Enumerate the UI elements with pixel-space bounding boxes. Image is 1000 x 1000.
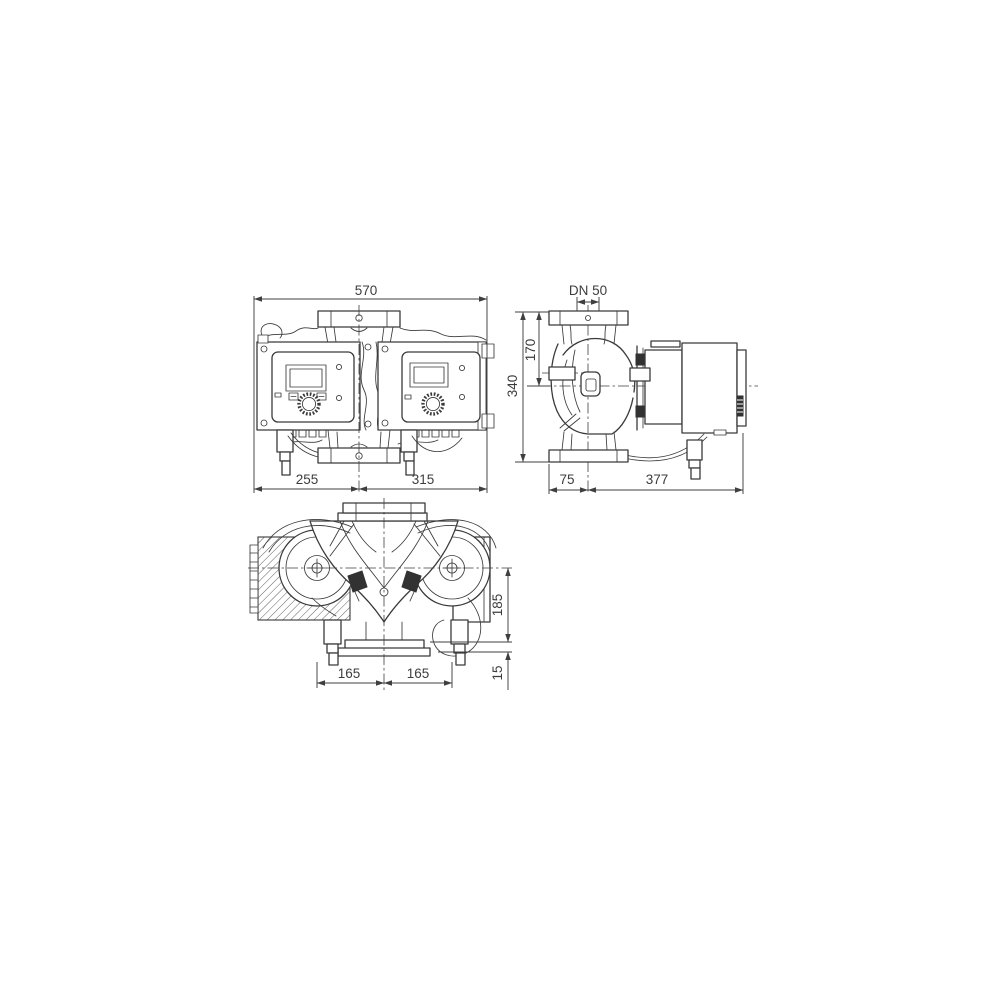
ribbed-connector: [737, 396, 743, 416]
front-view: [257, 305, 494, 493]
dim-side-nominal-diameter: DN 50: [569, 283, 607, 298]
terminal-nubs: [289, 430, 459, 437]
left-control-module: [272, 352, 354, 422]
plate-tab: [482, 344, 494, 358]
dim-top-left-spacing: 165: [338, 666, 361, 681]
shaft-cover: [581, 372, 600, 396]
dim-front-right-offset: 315: [412, 472, 435, 487]
dim-top-right-spacing: 165: [407, 666, 430, 681]
right-control-module: [402, 352, 480, 422]
top-view-upper-flange: [338, 503, 427, 521]
side-connector: [258, 335, 268, 343]
drawing-canvas: 570 255 315 DN 50 170 340 75 377 185 15: [0, 0, 1000, 1000]
dim-top-axis-offset: 185: [490, 594, 505, 617]
casting-curve: [400, 328, 486, 340]
lantern-bolt: [365, 421, 371, 427]
side-cable-gland: [687, 440, 702, 479]
lantern-bolt: [365, 344, 371, 350]
side-bottom-flange: [549, 432, 628, 462]
cable-gland-right: [401, 430, 417, 475]
dim-side-total-height: 340: [505, 375, 520, 398]
motor-window: [630, 368, 650, 381]
motor-clamp: [636, 346, 645, 430]
dim-top-foot-offset: 15: [490, 665, 505, 680]
electronics-module: [682, 343, 737, 433]
technical-drawing: 570 255 315 DN 50 170 340 75 377 185 15: [0, 0, 1000, 1000]
pressure-port: [549, 367, 575, 380]
vent-plug-stem: [410, 592, 414, 601]
vent-plug-stem: [355, 592, 359, 601]
dim-side-rear-depth: 377: [646, 472, 669, 487]
rib-strip: [250, 545, 258, 613]
dim-front-total-width: 570: [355, 283, 378, 298]
cable-gland-left: [277, 430, 293, 475]
plate-tab: [482, 414, 494, 428]
top-cable-gland-left: [324, 620, 341, 665]
motor-and-module: [630, 341, 746, 435]
housing-gap-curve: [361, 342, 366, 430]
dim-front-left-offset: 255: [296, 472, 319, 487]
cable: [412, 436, 462, 452]
side-view: [540, 305, 758, 494]
dim-side-port-height: 170: [523, 339, 538, 362]
module-foot: [714, 430, 726, 435]
top-view: [248, 498, 512, 690]
top-cable-gland-right: [451, 620, 468, 665]
dim-side-front-depth: 75: [559, 472, 574, 487]
motor-body: [645, 350, 682, 424]
